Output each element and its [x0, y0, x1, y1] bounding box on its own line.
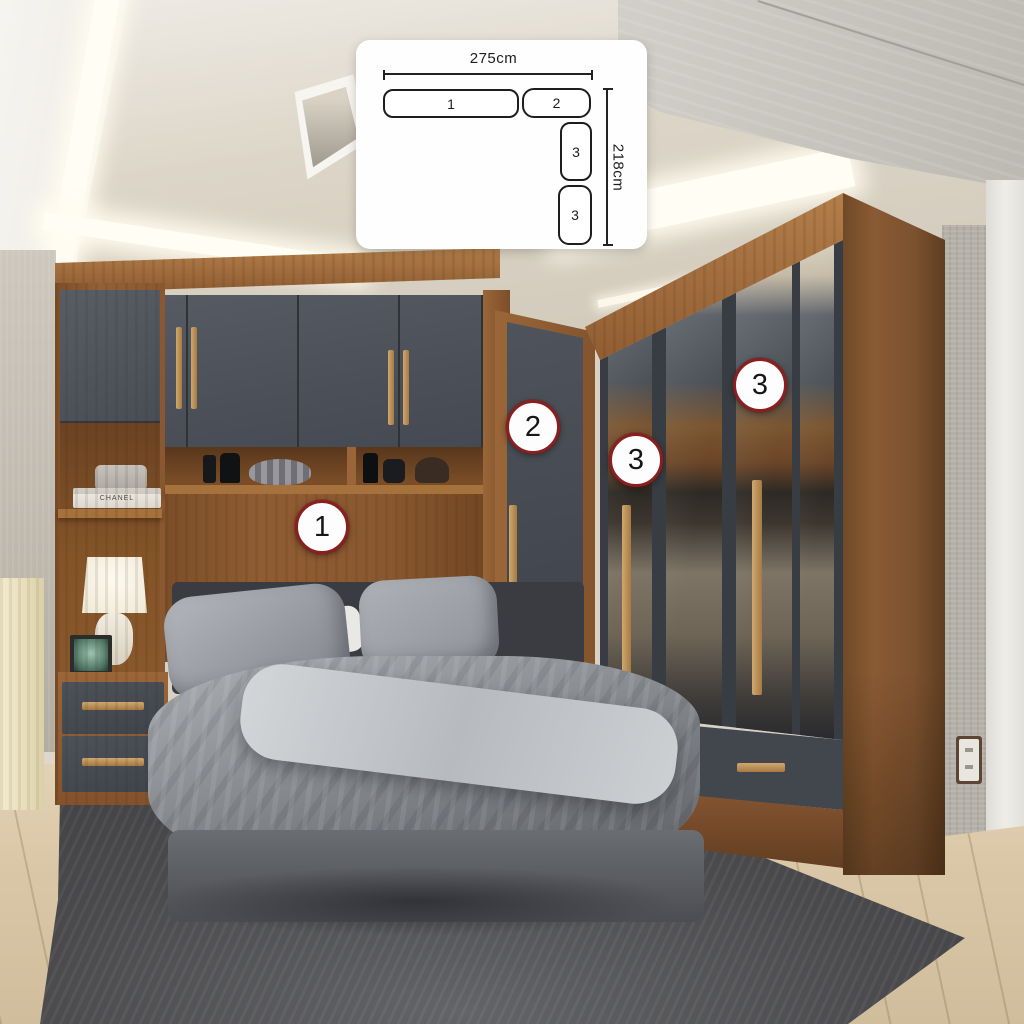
wall-outlet: [956, 736, 982, 784]
drawer-handle: [82, 758, 144, 766]
wall-outlet-face: [959, 739, 979, 781]
height-dimension-line: [606, 88, 608, 246]
door-handle: [176, 327, 182, 409]
photo-frame: [70, 635, 112, 675]
width-dimension-line: [383, 73, 593, 75]
callout-badge-1: 1: [295, 500, 349, 554]
door-gap: [297, 295, 299, 447]
callout-badge-3: 3: [609, 433, 663, 487]
diagram-piece-3: 3: [558, 185, 592, 245]
diagram-piece-1: 1: [383, 89, 519, 118]
table-lamp-base: [95, 613, 133, 665]
display-niche: [165, 447, 483, 485]
mirror-door: [736, 240, 792, 745]
open-shelf-niche: [60, 423, 160, 805]
bed-base: [168, 830, 704, 922]
annotated-bedroom-photo: CHANEL: [0, 0, 1024, 1024]
table-lamp-shade: [82, 557, 147, 613]
dimension-diagram-card: 275cm 218cm 1 2 3 3: [356, 40, 647, 249]
diagram-piece-2: 2: [522, 88, 591, 118]
decor-box: [95, 465, 147, 491]
decor-jar: [220, 453, 240, 483]
drawer-handle: [82, 702, 144, 710]
niche-divider: [347, 447, 356, 485]
decor-bottle: [383, 459, 405, 483]
bed: [148, 568, 700, 936]
height-dimension-label: 218cm: [610, 138, 627, 198]
callout-badge-2: 2: [506, 400, 560, 454]
decor-bottle: [363, 453, 378, 483]
photo: [74, 639, 108, 671]
shelf-board: [165, 485, 483, 494]
door-handle: [752, 480, 762, 695]
book-stack: CHANEL: [73, 488, 161, 508]
curtain: [0, 578, 44, 810]
decor-jar: [203, 455, 216, 483]
upper-cabinet-door: [60, 290, 160, 423]
width-dimension-label: 275cm: [416, 50, 571, 67]
bridge-cabinet-doors: [165, 295, 483, 447]
door-gap: [398, 295, 400, 447]
callout-badge-3: 3: [733, 358, 787, 412]
decor-object: [415, 457, 449, 483]
door-handle: [403, 350, 409, 425]
door-handle: [388, 350, 394, 425]
drawer-handle: [737, 763, 785, 772]
right-pillar: [986, 180, 1024, 835]
door-gap: [186, 295, 188, 447]
shelf-board: [58, 509, 162, 518]
mirror-door: [800, 240, 834, 745]
diagram-piece-3: 3: [560, 122, 592, 181]
wardrobe-end-panel: [843, 193, 945, 875]
decor-vase: [249, 459, 311, 485]
door-handle: [191, 327, 197, 409]
